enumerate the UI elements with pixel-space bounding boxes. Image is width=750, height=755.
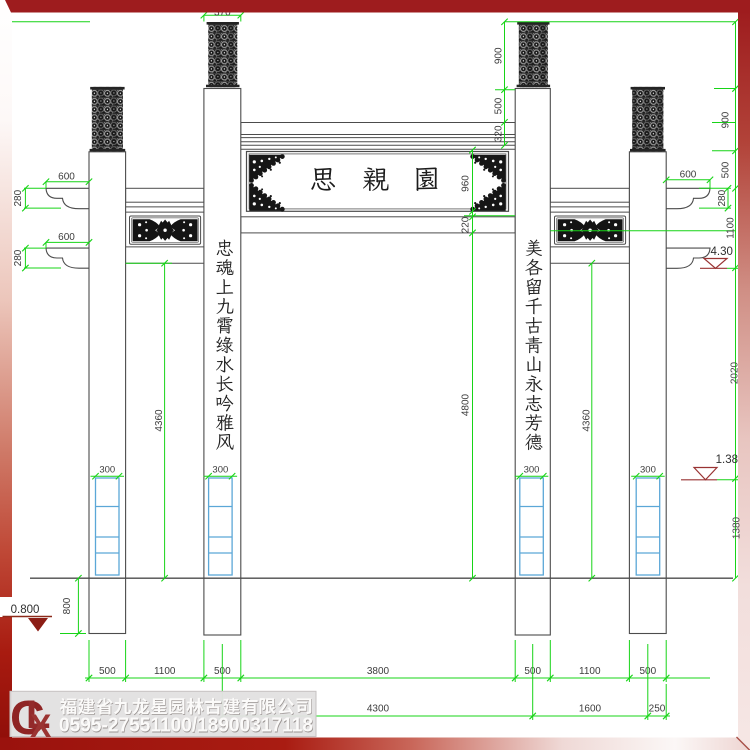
svg-text:300: 300: [99, 465, 115, 476]
svg-text:900: 900: [721, 111, 732, 128]
svg-text:280: 280: [717, 189, 728, 206]
svg-text:500: 500: [99, 666, 116, 677]
svg-text:960: 960: [461, 175, 472, 192]
svg-text:220: 220: [461, 216, 472, 233]
svg-text:500: 500: [721, 161, 732, 178]
svg-text:320: 320: [494, 125, 505, 142]
svg-text:600: 600: [58, 172, 75, 183]
svg-text:300: 300: [640, 465, 656, 476]
svg-text:4300: 4300: [367, 704, 390, 715]
svg-text:600: 600: [58, 232, 75, 243]
svg-text:1600: 1600: [579, 704, 602, 715]
svg-text:500: 500: [494, 97, 505, 114]
svg-text:1.38: 1.38: [716, 454, 738, 466]
svg-text:0.800: 0.800: [11, 604, 40, 616]
svg-text:300: 300: [524, 465, 540, 476]
svg-text:800: 800: [62, 597, 73, 614]
svg-text:X: X: [30, 708, 52, 744]
svg-text:4800: 4800: [461, 393, 472, 416]
svg-text:1100: 1100: [726, 217, 737, 239]
svg-text:4360: 4360: [581, 409, 592, 432]
svg-text:3800: 3800: [367, 666, 390, 677]
svg-text:300: 300: [212, 465, 228, 476]
svg-text:1100: 1100: [579, 666, 601, 677]
svg-text:4360: 4360: [154, 409, 165, 432]
svg-text:280: 280: [13, 249, 24, 266]
svg-text:250: 250: [649, 704, 666, 715]
svg-text:1100: 1100: [154, 666, 176, 677]
svg-text:0595-27551100/18900317118: 0595-27551100/18900317118: [59, 714, 313, 737]
svg-text:1380: 1380: [732, 516, 743, 539]
svg-text:2020: 2020: [730, 361, 741, 384]
svg-text:600: 600: [680, 170, 697, 181]
svg-text:900: 900: [494, 47, 505, 64]
svg-text:280: 280: [13, 189, 24, 206]
svg-text:4.30: 4.30: [711, 246, 733, 258]
